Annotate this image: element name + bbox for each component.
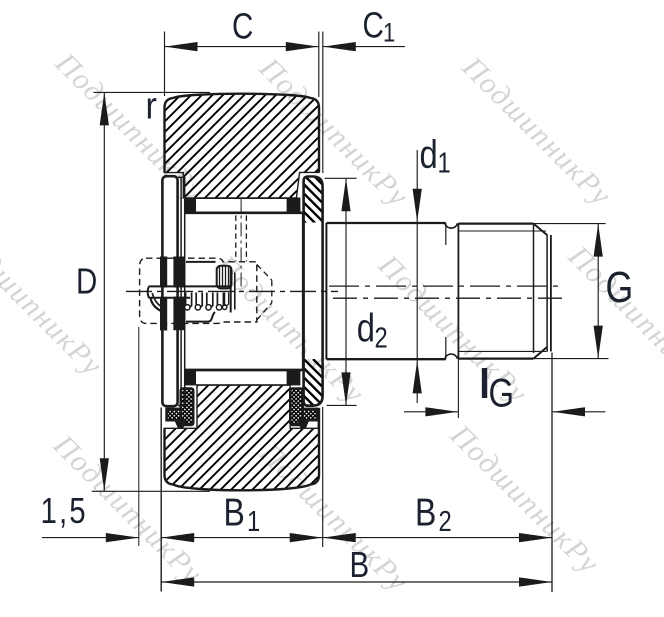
- svg-text:1: 1: [247, 505, 260, 538]
- svg-text:ПодшипникРу: ПодшипникРу: [455, 50, 618, 213]
- svg-text:C: C: [363, 5, 384, 45]
- svg-text:2: 2: [439, 505, 452, 538]
- svg-text:G: G: [606, 264, 634, 312]
- svg-text:G: G: [489, 370, 515, 415]
- svg-text:2: 2: [375, 321, 388, 354]
- svg-text:d: d: [420, 132, 438, 177]
- svg-text:B: B: [350, 544, 370, 584]
- svg-text:D: D: [76, 261, 97, 301]
- svg-text:B: B: [415, 491, 436, 535]
- svg-text:B: B: [224, 491, 245, 535]
- svg-text:ПодшипникРу: ПодшипникРу: [443, 418, 606, 581]
- svg-text:1: 1: [383, 19, 395, 49]
- svg-text:1,5: 1,5: [41, 490, 88, 530]
- svg-text:d: d: [357, 305, 375, 350]
- svg-text:ПодшипникРу: ПодшипникРу: [252, 436, 415, 599]
- svg-text:C: C: [232, 6, 253, 46]
- svg-text:r: r: [146, 84, 157, 127]
- svg-text:ПодшипникРу: ПодшипникРу: [0, 220, 109, 383]
- svg-text:1: 1: [438, 146, 451, 179]
